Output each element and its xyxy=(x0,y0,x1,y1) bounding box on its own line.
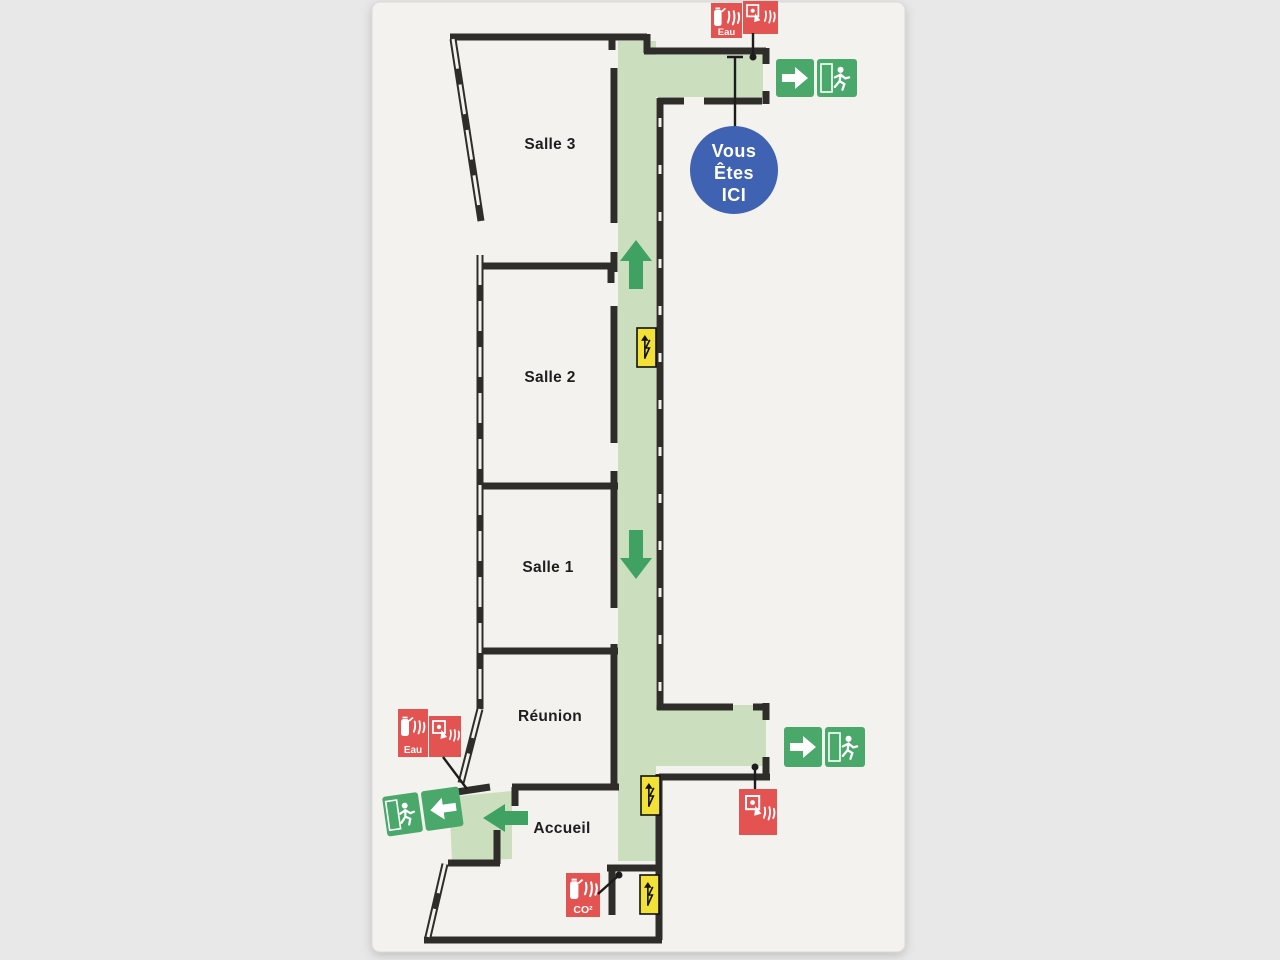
electrical-panel-icon-1 xyxy=(637,328,656,367)
you-are-here-line3: ICI xyxy=(722,185,747,205)
manual-call-point-icon-left xyxy=(429,716,461,757)
you-are-here-line2: Êtes xyxy=(714,162,754,183)
room-label-salle1: Salle 1 xyxy=(522,559,573,576)
fire-extinguisher-water-icon: Eau xyxy=(711,3,742,38)
room-label-reunion: Réunion xyxy=(518,708,582,725)
room-label-salle2: Salle 2 xyxy=(524,369,575,386)
extinguisher-co2-label: CO² xyxy=(573,904,593,916)
fire-extinguisher-co2-icon: CO² xyxy=(566,873,600,917)
extinguisher-water-label-left: Eau xyxy=(404,745,422,756)
fire-extinguisher-water-icon-left: Eau xyxy=(398,709,428,757)
electrical-panel-icon-2 xyxy=(641,776,660,815)
electrical-panel-icon-3 xyxy=(640,875,659,914)
corridor-left-wall xyxy=(612,37,614,789)
you-are-here-line1: Vous xyxy=(712,141,757,161)
manual-call-point-icon-bottom xyxy=(739,789,777,835)
room-label-salle3: Salle 3 xyxy=(524,136,575,153)
room-label-accueil: Accueil xyxy=(533,820,590,837)
manual-call-point-icon-top xyxy=(743,1,778,34)
photo-background: Eau Eau CO² xyxy=(0,0,1280,960)
extinguisher-water-label: Eau xyxy=(718,27,736,38)
evacuation-plan-svg: Eau Eau CO² xyxy=(0,0,1280,960)
